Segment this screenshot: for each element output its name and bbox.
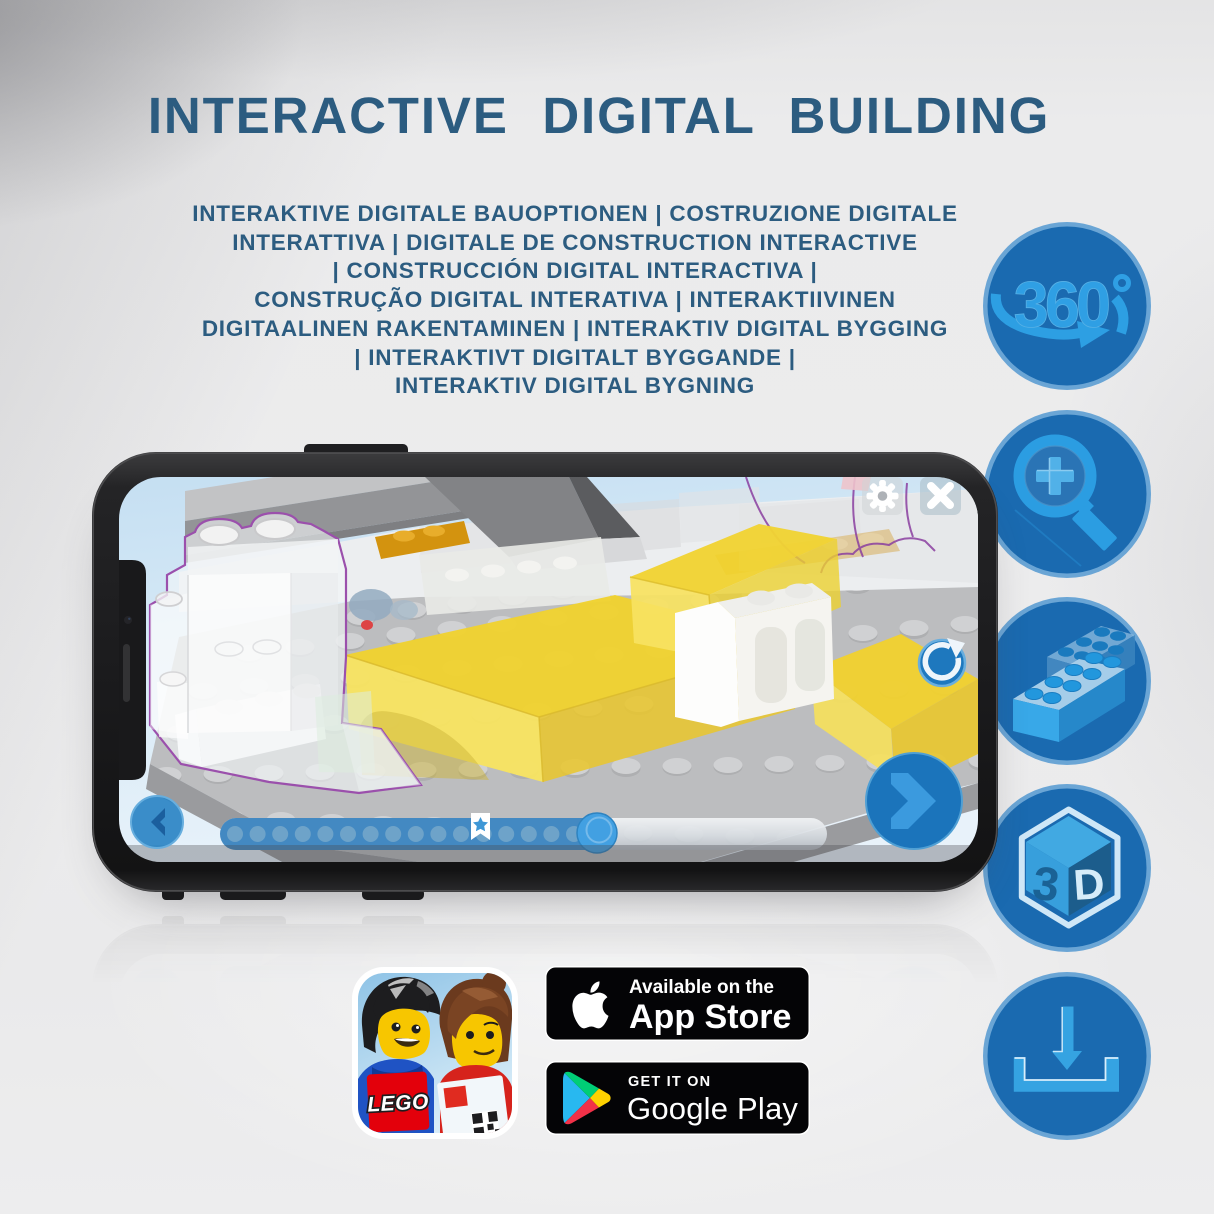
svg-text:Available on the: Available on the xyxy=(629,977,774,998)
svg-text:GET IT ON: GET IT ON xyxy=(628,1074,711,1090)
svg-text:D: D xyxy=(1072,860,1106,910)
svg-text:LEGO: LEGO xyxy=(367,1090,430,1116)
svg-text:Google Play: Google Play xyxy=(627,1091,798,1126)
svg-text:App Store: App Store xyxy=(629,998,791,1036)
svg-text:360: 360 xyxy=(1014,268,1109,341)
